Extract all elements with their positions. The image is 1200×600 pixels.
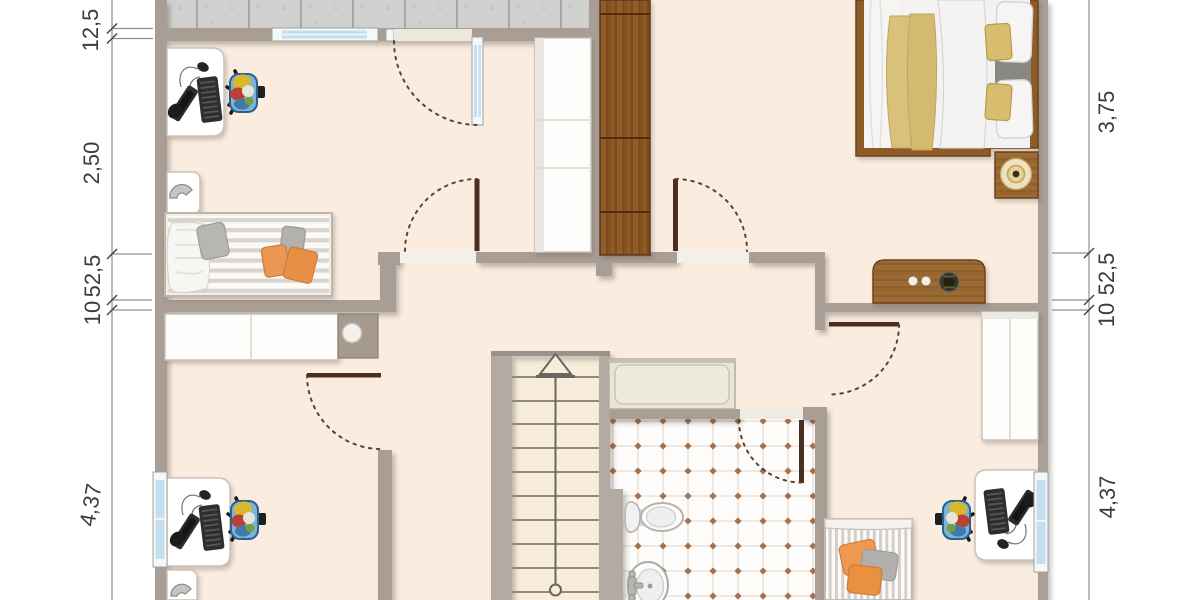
svg-text:52,5: 52,5 bbox=[80, 255, 105, 298]
svg-text:12,5: 12,5 bbox=[78, 9, 103, 52]
svg-text:10: 10 bbox=[80, 301, 105, 325]
svg-text:3,75: 3,75 bbox=[1094, 91, 1119, 134]
svg-text:2,50: 2,50 bbox=[79, 142, 104, 185]
svg-text:52,5: 52,5 bbox=[1094, 253, 1119, 296]
svg-text:10: 10 bbox=[1094, 303, 1119, 327]
svg-text:4,37: 4,37 bbox=[1095, 476, 1120, 519]
